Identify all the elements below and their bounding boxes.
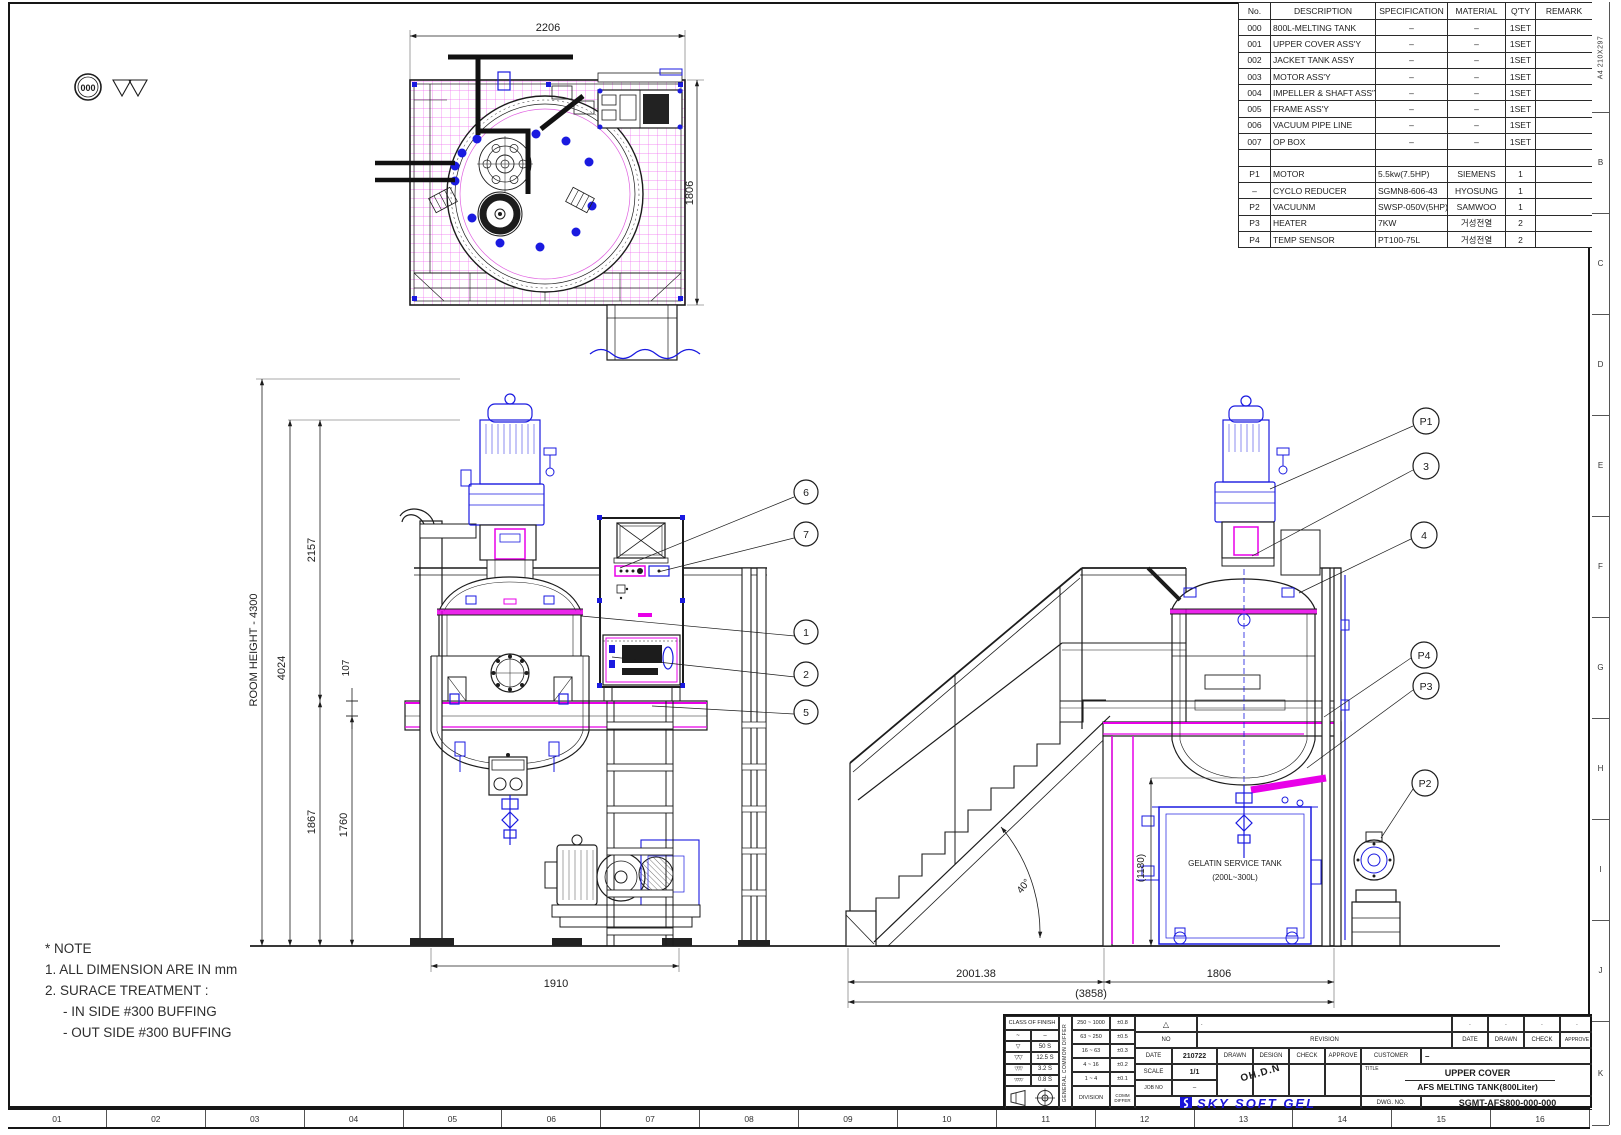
rev-dot: . [1524,1016,1560,1032]
tol-range: 63 ~ 250 [1072,1030,1110,1044]
parts-row: 000800L-MELTING TANK––1SET [1239,20,1593,36]
callout-6: 6 [803,487,809,499]
zone-letter: H [1592,718,1609,820]
parts-row: –CYCLO REDUCERSGMN8-606-43HYOSUNG1 [1239,182,1593,198]
side-bottom-valve [1236,785,1252,858]
finish-val: 12.5 S [1031,1052,1059,1063]
side-view: 40° [846,396,1439,1008]
jobno-value: – [1172,1080,1217,1096]
callout-4: 4 [1421,530,1427,542]
callout-P3: P3 [1420,681,1433,693]
parts-row-empty [1239,150,1593,166]
rev-dot: . [1560,1016,1594,1032]
zone-letter: F [1592,516,1609,618]
col-material: MATERIAL [1448,3,1506,20]
side-tank [1148,560,1326,858]
revision-entry: . [1197,1016,1452,1032]
zone-number: 09 [799,1110,898,1127]
zone-strip-right: A4 210X297 B C D E F G H I J K [1592,2,1610,1125]
dim-2157: 2157 [306,538,318,562]
check-sign-cell [1289,1064,1325,1096]
tol-val: ±0.1 [1110,1072,1135,1086]
dim-room-height: ROOM HEIGHT - 4300 [248,594,260,707]
callout-2: 2 [803,669,809,681]
side-stairs [846,700,1118,946]
zone-number: 10 [898,1110,997,1127]
finish-val: 0.8 S [1031,1075,1059,1086]
plan-dim-width: 2206 [536,22,560,34]
dim-1806-side: 1806 [1207,968,1231,980]
drawing-title-1: UPPER COVER [1361,1068,1594,1078]
note-line: - OUT SIDE #300 BUFFING [45,1022,237,1043]
callout-5: 5 [803,707,809,719]
balloon-label: 000 [80,83,95,93]
finish-triangles-icon [113,80,131,96]
parts-row: 005FRAME ASS'Y––1SET [1239,101,1593,117]
rev-drawn-label: DRAWN [1488,1032,1524,1048]
scale-value: 1/1 [1172,1064,1217,1080]
col-remark: REMARK [1536,3,1593,20]
zone-number: 06 [502,1110,601,1127]
parts-row: 003MOTOR ASS'Y––1SET [1239,68,1593,84]
drawn-label: DRAWN [1217,1048,1253,1064]
zone-number: 12 [1096,1110,1195,1127]
approve-sign-cell [1325,1064,1361,1096]
zone-letter: D [1592,314,1609,416]
col-description: DESCRIPTION [1271,3,1376,20]
parts-list-table: No. DESCRIPTION SPECIFICATION MATERIAL Q… [1238,2,1593,248]
rev-approve-label: APPROVE [1560,1032,1594,1048]
finish-val: 50 S [1031,1041,1059,1052]
parts-row: 002JACKET TANK ASSY––1SET [1239,52,1593,68]
revision-triangle-icon: △ [1135,1016,1197,1032]
note-line: 2. SURACE TREATMENT : [45,980,237,1001]
zone-letter: I [1592,819,1609,921]
plan-stair-extension [590,305,700,360]
zone-number: 04 [305,1110,404,1127]
zone-number: 08 [700,1110,799,1127]
parts-row: 006VACUUM PIPE LINE––1SET [1239,117,1593,133]
tol-range: 16 ~ 63 [1072,1044,1110,1058]
note-line: 1. ALL DIMENSION ARE IN mm [45,959,237,980]
zone-number: 15 [1392,1110,1491,1127]
third-angle-projection-icon [1007,1088,1057,1108]
service-tank-capacity: (200L~300L) [1212,873,1258,882]
front-op-box [597,515,685,701]
callout-P4: P4 [1418,650,1431,662]
service-tank-label: GELATIN SERVICE TANK [1188,859,1282,868]
parts-row: 001UPPER COVER ASS'Y––1SET [1239,36,1593,52]
dim-1867: 1867 [306,810,318,834]
title-underline [1405,1080,1555,1081]
zone-number: 01 [8,1110,107,1127]
col-specification: SPECIFICATION [1376,3,1448,20]
comm-differ-label: COMM DIFFER [1110,1086,1135,1110]
parts-row: 004IMPELLER & SHAFT ASS'Y––1SET [1239,85,1593,101]
finish-sym: ~ [1005,1030,1031,1041]
side-vacuum-pump [1352,832,1400,946]
gelatin-service-tank: GELATIN SERVICE TANK (200L~300L) [1136,797,1321,944]
finish-sym: ▽ [1005,1041,1031,1052]
scale-label: SCALE [1135,1064,1172,1080]
callout-P2: P2 [1419,778,1432,790]
dim-1910: 1910 [544,978,568,990]
zone-number: 02 [107,1110,206,1127]
approve-label: APPROVE [1325,1048,1361,1064]
side-motor [1215,396,1289,522]
note-title: * NOTE [45,938,237,959]
callout-3: 3 [1423,461,1429,473]
dim-3858: (3858) [1075,988,1107,1000]
plan-view: 2206 1806 [375,22,704,360]
dim-1180: (1180) [1136,854,1147,882]
zone-letter: B [1592,112,1609,214]
callout-P1: P1 [1420,416,1433,428]
zone-number: 16 [1491,1110,1590,1127]
tol-val: ±0.5 [1110,1030,1135,1044]
finish-sym: ▽▽▽▽ [1005,1075,1031,1086]
front-motor [461,394,556,525]
zone-number: 14 [1293,1110,1392,1127]
zone-number: 07 [601,1110,700,1127]
tol-range: 250 ~ 1000 [1072,1016,1110,1030]
parts-row: P4TEMP SENSORPT100-75L거성전열2 [1239,231,1593,247]
parts-row: 007OP BOX––1SET [1239,134,1593,150]
zone-number: 11 [997,1110,1096,1127]
zone-letter: G [1592,617,1609,719]
side-motor-stand [1222,522,1274,566]
dim-107: 107 [341,659,352,676]
tol-range: 4 ~ 16 [1072,1058,1110,1072]
parts-row: P1MOTOR5.5kw(7.5HP)SIEMENS1 [1239,166,1593,182]
front-motor-stand [480,525,536,581]
zone-letter: K [1592,1021,1609,1126]
item-balloon-000: 000 [75,74,147,100]
finish-header: CLASS OF FINISH [1005,1016,1059,1030]
tol-val: ±0.8 [1110,1016,1135,1030]
finish-sym: ▽▽▽ [1005,1064,1031,1075]
tol-val: ±0.2 [1110,1058,1135,1072]
date-value: 210722 [1172,1048,1217,1064]
rev-revision-label: REVISION [1197,1032,1452,1048]
jobno-label: JOB NO [1135,1080,1172,1096]
zone-number: 13 [1195,1110,1294,1127]
zone-letter: J [1592,920,1609,1022]
tol-range: 1 ~ 4 [1072,1072,1110,1086]
dim-1760: 1760 [338,813,350,837]
front-right-columns [738,568,770,946]
customer-value: – [1421,1048,1594,1064]
rev-no-label: NO [1135,1032,1197,1048]
title-block: CLASS OF FINISH ~ – ▽ 50 S ▽▽ 12.5 S ▽▽▽… [1003,1014,1592,1108]
check-label: CHECK [1289,1048,1325,1064]
callout-7: 7 [803,529,809,541]
projection-symbols [1005,1086,1059,1110]
col-qty: Q'TY [1506,3,1536,20]
finish-val: 3.2 S [1031,1064,1059,1075]
notes-block: * NOTE 1. ALL DIMENSION ARE IN mm 2. SUR… [45,938,237,1043]
zone-strip-bottom: 01 02 03 04 05 06 07 08 09 10 11 12 13 1… [8,1108,1590,1129]
finish-val: – [1031,1030,1059,1041]
dim-4024: 4024 [276,656,288,680]
rev-dot: . [1488,1016,1524,1032]
zone-number: 03 [206,1110,305,1127]
dim-2001: 2001.38 [956,968,996,980]
dim-angle-40: 40° [1015,877,1033,896]
date-label: DATE [1135,1048,1172,1064]
parts-row: P2VACUUNMSWSP-050V(5HP)SAMWOO1 [1239,199,1593,215]
tolerance-vertical-label: GENERAL COMMON DIFFER [1059,1016,1072,1110]
design-label: DESIGN [1253,1048,1289,1064]
division-label: DIVISION [1072,1086,1110,1110]
drawing-title-2: AFS MELTING TANK(800Liter) [1361,1082,1594,1092]
callout-1: 1 [803,627,809,639]
zone-number: 05 [404,1110,503,1127]
parts-row: P3HEATER7KW거성전열2 [1239,215,1593,231]
parts-header-row: No. DESCRIPTION SPECIFICATION MATERIAL Q… [1239,3,1593,20]
finish-sym: ▽▽ [1005,1052,1031,1063]
tol-val: ±0.3 [1110,1044,1135,1058]
paper-size-note: A4 210X297 [1592,2,1609,113]
rev-check-label: CHECK [1524,1032,1560,1048]
col-no: No. [1239,3,1271,20]
rev-dot: . [1452,1016,1488,1032]
customer-label: CUSTOMER [1361,1048,1421,1064]
note-line: - IN SIDE #300 BUFFING [45,1001,237,1022]
zone-letter: E [1592,415,1609,517]
zone-letter: C [1592,213,1609,315]
rev-date-label: DATE [1452,1032,1488,1048]
